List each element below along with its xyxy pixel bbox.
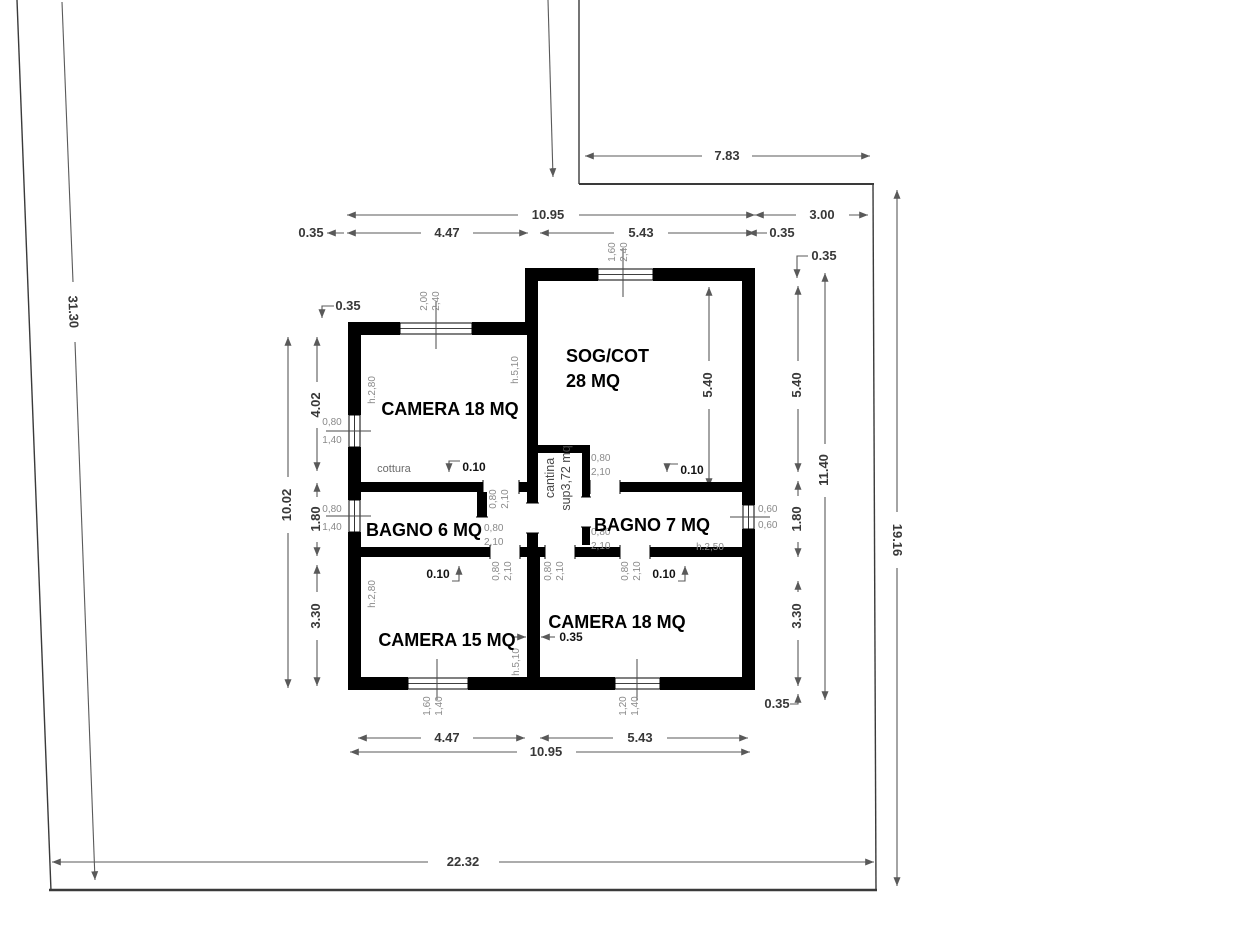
- window-width-label: 1,60: [422, 696, 433, 716]
- door-height-label: 2,10: [632, 561, 643, 581]
- window-top-left: 2,00 2,40: [400, 291, 472, 349]
- window-width-label: 1,60: [607, 242, 618, 262]
- dim-left-camera: 4.02: [308, 392, 323, 417]
- door-width-label: 0,80: [591, 453, 611, 464]
- window-width-label: 2,00: [419, 291, 430, 311]
- dim-site-right: 19.16: [890, 524, 905, 557]
- dim-right-wall-bottom: 0.35: [764, 696, 789, 711]
- bottom-dimensions: 4.47 5.43 10.95: [350, 730, 750, 759]
- dim-wall-thin: 0.10: [426, 567, 450, 581]
- dim-right-camera: 3.30: [789, 603, 804, 628]
- door-width-label: 0,80: [484, 523, 504, 534]
- floorplan-drawing: 7.83 31.30 19.16 22.32 10.95 3.00 0.35 4…: [0, 0, 1258, 949]
- door-height-label: 2,10: [484, 537, 504, 548]
- boundary-left-line: [17, 0, 51, 891]
- window-height-label: 2,40: [619, 242, 630, 262]
- room-label-cantina-area: sup3,72 mq: [559, 445, 573, 510]
- room-label-soggiorno: SOG/COT: [566, 346, 649, 366]
- height-label-bagno7: h.2,50: [696, 542, 724, 553]
- door-height-label: 2,10: [500, 489, 511, 509]
- height-label-camera15-right: h.5,10: [511, 648, 522, 676]
- dim-top-total: 10.95: [532, 207, 565, 222]
- room-label-bagno6: BAGNO 6 MQ: [366, 520, 482, 540]
- room-label-camera-top: CAMERA 18 MQ: [381, 399, 518, 419]
- dim-right-total: 11.40: [816, 454, 831, 486]
- window-width-label: 0,80: [322, 504, 342, 515]
- door-width-label: 0,80: [491, 561, 502, 581]
- window-height-label: 0,60: [758, 520, 778, 531]
- door-height-label: 2,10: [591, 541, 611, 552]
- dim-left-camera15: 3.30: [308, 603, 323, 628]
- boundary-right-line: [873, 184, 876, 890]
- window-width-label: 1,20: [618, 696, 629, 716]
- window-height-label: 1,40: [322, 435, 342, 446]
- dim-right-sog: 5.40: [789, 372, 804, 397]
- window-height-label: 1,40: [322, 522, 342, 533]
- door-height-label: 2,10: [555, 561, 566, 581]
- room-label-soggiorno-area: 28 MQ: [566, 371, 620, 391]
- room-label-camera15: CAMERA 15 MQ: [378, 630, 515, 650]
- window-height-label: 2,40: [431, 291, 442, 311]
- window-bottom-left: 1,60 1,40: [408, 659, 468, 716]
- top-dimensions: 10.95 3.00 0.35 4.47 5.43 0.35 0.35: [298, 207, 868, 278]
- door-width-label: 0,80: [488, 489, 499, 509]
- window-left-upper: 0,80 1,40: [322, 415, 371, 447]
- dim-top-wall-right: 0.35: [769, 225, 794, 240]
- dim-right-bagno: 1.80: [789, 506, 804, 531]
- dim-top-room-left: 4.47: [434, 225, 459, 240]
- dim-left-total: 10.02: [279, 489, 294, 522]
- height-label-camera15: h.2,80: [367, 580, 378, 608]
- dim-top-wall-left: 0.35: [298, 225, 323, 240]
- dim-top-wall-right2: 0.35: [811, 248, 836, 263]
- dim-site-left: 31.30: [65, 295, 81, 328]
- window-height-label: 1,40: [630, 696, 641, 716]
- dim-left-bagno: 1.80: [308, 506, 323, 531]
- window-right-bagno: 0,60 0,60: [730, 504, 778, 531]
- dim-wall-thin: 0.10: [652, 567, 676, 581]
- dim-bottom-total: 10.95: [530, 744, 563, 759]
- site-dimensions: 7.83 31.30 19.16 22.32: [52, 2, 905, 886]
- height-label-camera-top: h.2,80: [367, 376, 378, 404]
- dim-bottom-room-left: 4.47: [434, 730, 459, 745]
- dim-site-bottom: 22.32: [447, 854, 480, 869]
- door-width-label: 0,80: [543, 561, 554, 581]
- dim-top-room-right: 5.43: [628, 225, 653, 240]
- dim-site-top: 7.83: [714, 148, 739, 163]
- dim-wall-mid: 0.35: [559, 630, 583, 644]
- window-width-label: 0,60: [758, 504, 778, 515]
- room-label-bagno7: BAGNO 7 MQ: [594, 515, 710, 535]
- door-height-label: 2,10: [591, 467, 611, 478]
- door-height-label: 2,10: [503, 561, 514, 581]
- dim-left-wall-top: 0.35: [335, 298, 360, 313]
- dimension-leader-top: [548, 0, 553, 177]
- door-width-label: 0,80: [620, 561, 631, 581]
- dim-top-right: 3.00: [809, 207, 834, 222]
- room-label-cantina: cantina: [543, 458, 557, 498]
- window-height-label: 1,40: [434, 696, 445, 716]
- height-label-camera-top-right: h.5,10: [510, 356, 521, 384]
- room-label-cottura: cottura: [377, 463, 412, 475]
- window-bottom-right: 1,20 1,40: [615, 659, 660, 716]
- room-label-camera18-bottom: CAMERA 18 MQ: [548, 612, 685, 632]
- dim-sog-inner: 5.40: [700, 372, 715, 397]
- dim-bottom-room-right: 5.43: [627, 730, 652, 745]
- dim-wall-thin: 0.10: [680, 463, 704, 477]
- window-width-label: 0,80: [322, 417, 342, 428]
- window-top-right: 1,60 2,40: [598, 242, 653, 297]
- dim-wall-thin: 0.10: [462, 460, 486, 474]
- floorplan-canvas: 7.83 31.30 19.16 22.32 10.95 3.00 0.35 4…: [0, 0, 1258, 949]
- window-left-lower: 0,80 1,40: [322, 500, 371, 533]
